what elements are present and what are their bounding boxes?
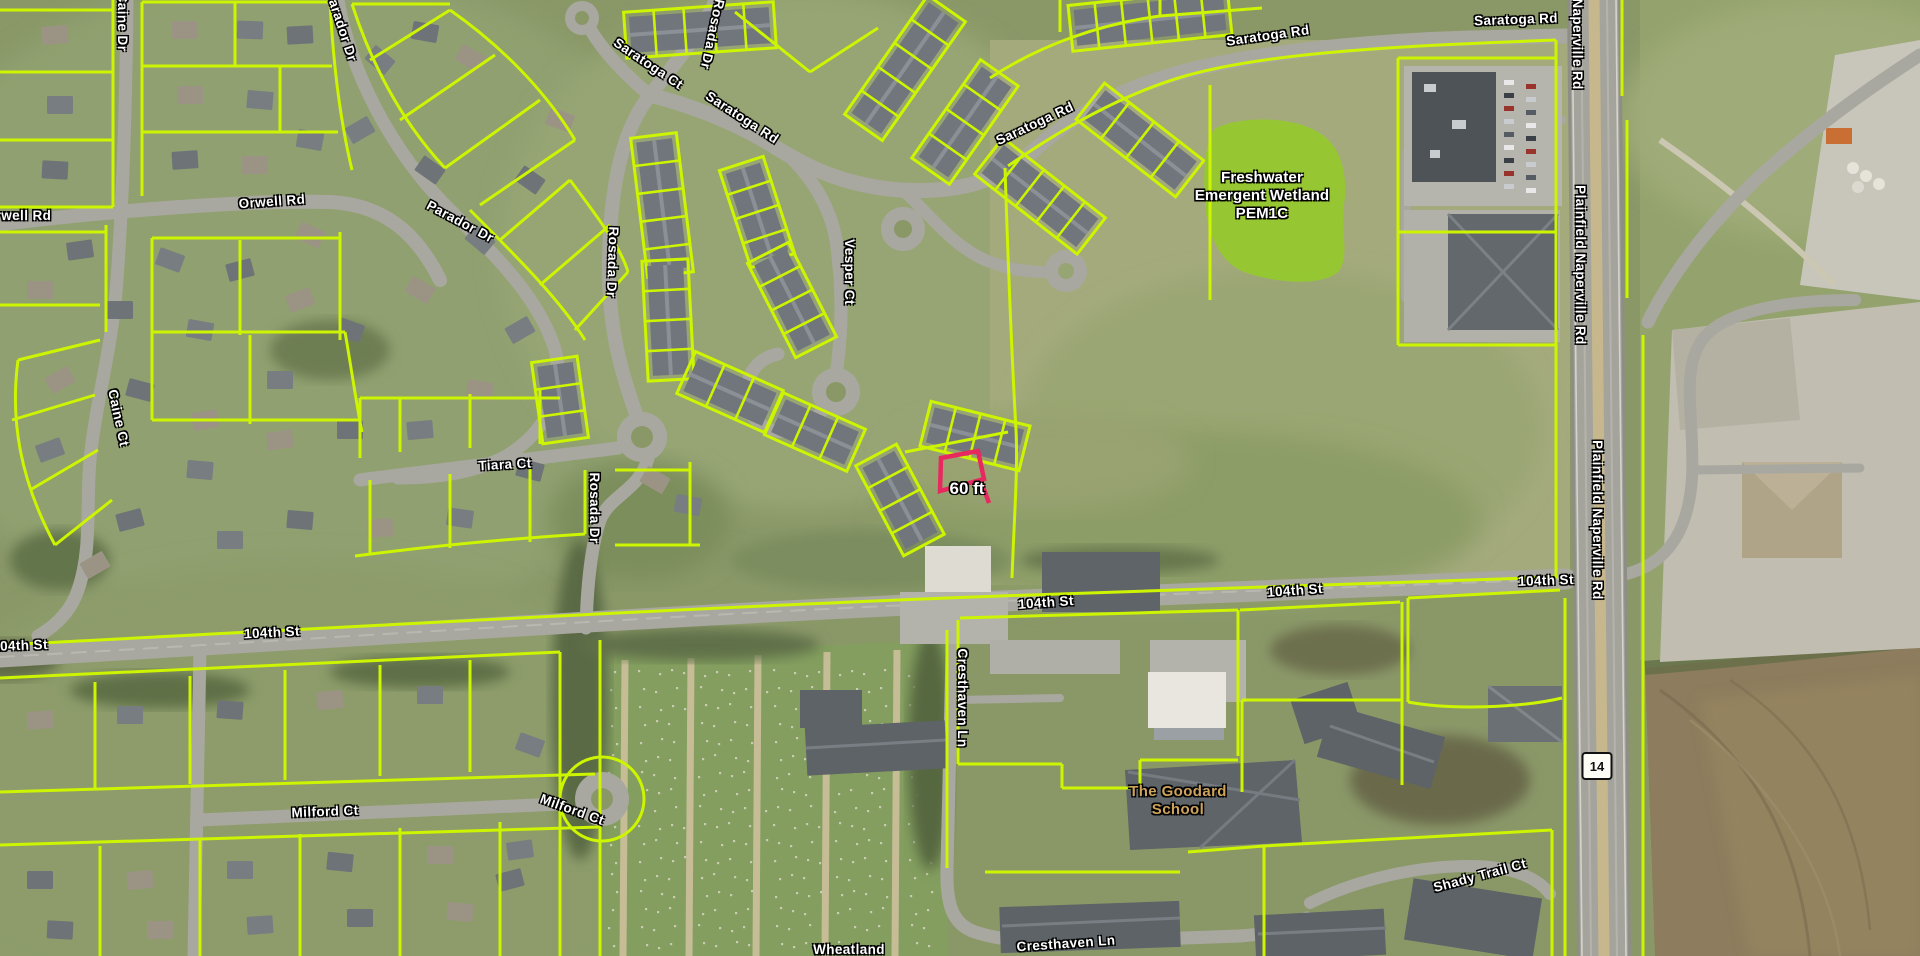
- house-roof: [27, 871, 53, 889]
- house-roof: [177, 86, 203, 104]
- house-roof: [42, 160, 69, 179]
- house-roof: [347, 909, 373, 927]
- house-roof: [237, 21, 264, 40]
- house-roof: [506, 839, 534, 860]
- route-14-shield: 14: [1582, 752, 1613, 780]
- wetland-polygon[interactable]: [1204, 119, 1345, 281]
- house-roof: [286, 510, 313, 530]
- naperville-road: [1572, 0, 1626, 956]
- house-roof: [27, 710, 54, 729]
- house-roof: [172, 21, 198, 39]
- house-roof: [246, 915, 273, 935]
- house-roof: [47, 96, 73, 114]
- house-roof: [326, 852, 354, 873]
- map-canvas[interactable]: Caine DrOrwell RdOrwell RdParador DrPara…: [0, 0, 1920, 956]
- house-roof: [216, 700, 243, 720]
- house-roof: [66, 239, 94, 260]
- house-roof: [242, 156, 268, 174]
- house-roof: [117, 706, 143, 724]
- house-roof: [427, 846, 453, 864]
- house-roof: [47, 920, 74, 939]
- house-roof: [227, 861, 253, 879]
- house-roof: [246, 90, 273, 110]
- house-roof: [217, 531, 243, 549]
- house-roof: [406, 420, 433, 440]
- house-roof: [186, 460, 213, 480]
- house-roof: [171, 150, 198, 170]
- aerial-imagery: [0, 0, 1920, 956]
- route-shield-number: 14: [1590, 759, 1604, 774]
- house-roof: [266, 429, 294, 450]
- house-roof: [27, 281, 53, 299]
- house-roof: [287, 25, 314, 44]
- house-roof: [446, 902, 473, 922]
- house-roof: [316, 690, 343, 710]
- house-roof: [126, 870, 153, 890]
- house-roof: [107, 301, 133, 319]
- house-roof: [147, 921, 173, 939]
- house-roof: [41, 25, 68, 45]
- house-roof: [417, 686, 443, 704]
- house-roof: [267, 371, 293, 389]
